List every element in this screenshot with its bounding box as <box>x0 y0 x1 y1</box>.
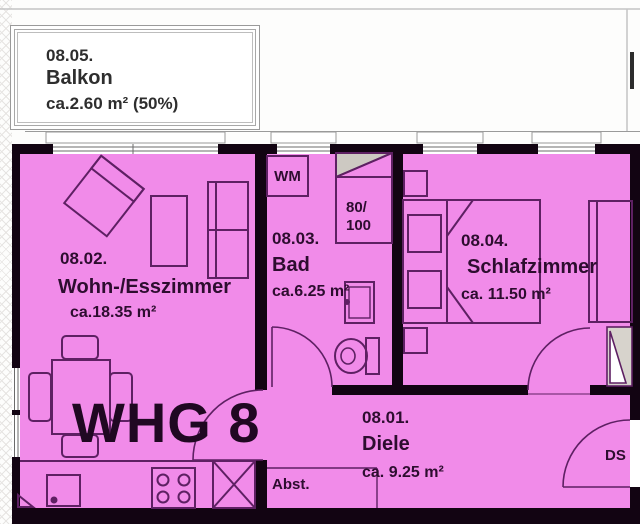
wall-bath-bedroom <box>392 144 403 395</box>
wall-living-bath <box>255 144 267 390</box>
wall-kitchen-storage <box>255 460 267 524</box>
duct-label: DS <box>605 448 626 464</box>
window-bedroom-1 <box>423 144 477 154</box>
sill-living <box>46 132 225 143</box>
wall-bedroom-bottom-1 <box>403 385 528 395</box>
storage-label: Abst. <box>272 477 310 493</box>
hall-number: 08.01. <box>362 409 409 427</box>
entrance-opening <box>630 420 640 487</box>
living-name: Wohn-/Esszimmer <box>58 277 231 298</box>
bedroom-name: Schlafzimmer <box>467 257 597 278</box>
duct-shaft <box>607 327 632 386</box>
wall-bath-bottom <box>332 385 403 395</box>
wall-bottom <box>12 508 640 524</box>
shower-dimension-label: 80/ 100 <box>346 199 371 235</box>
bedroom-number: 08.04. <box>461 232 508 250</box>
balcony-area: ca.2.60 m² (50%) <box>46 95 178 113</box>
sill-bath <box>271 132 336 143</box>
neighbor-fragment <box>630 52 634 89</box>
shower-dim-line1: 80/ <box>346 199 371 217</box>
window-mullion <box>12 410 20 415</box>
bath-name: Bad <box>272 255 310 276</box>
apartment-label: WHG 8 <box>72 390 261 455</box>
wall-top-4 <box>477 144 538 154</box>
apartment-floor <box>12 144 640 524</box>
washing-machine-label: WM <box>267 156 308 196</box>
balcony-number: 08.05. <box>46 47 93 65</box>
shower-dim-line2: 100 <box>346 217 371 235</box>
bath-area: ca.6.25 m² <box>272 284 349 301</box>
window-living <box>53 144 218 154</box>
wall-left-upper <box>12 144 20 368</box>
sill-bedroom-1 <box>417 132 483 143</box>
hall-name: Diele <box>362 434 410 455</box>
living-number: 08.02. <box>60 250 107 268</box>
floor-plan: 08.05. Balkon ca.2.60 m² (50%) 08.02. Wo… <box>0 0 640 524</box>
wall-top-2 <box>218 144 277 154</box>
window-bedroom-2 <box>538 144 595 154</box>
hall-area: ca. 9.25 m² <box>362 465 444 482</box>
bath-number: 08.03. <box>272 230 319 248</box>
living-area: ca.18.35 m² <box>70 305 156 322</box>
sill-bedroom-2 <box>532 132 601 143</box>
window-bath <box>277 144 330 154</box>
balcony-name: Balkon <box>46 68 113 89</box>
bedroom-area: ca. 11.50 m² <box>461 287 551 304</box>
